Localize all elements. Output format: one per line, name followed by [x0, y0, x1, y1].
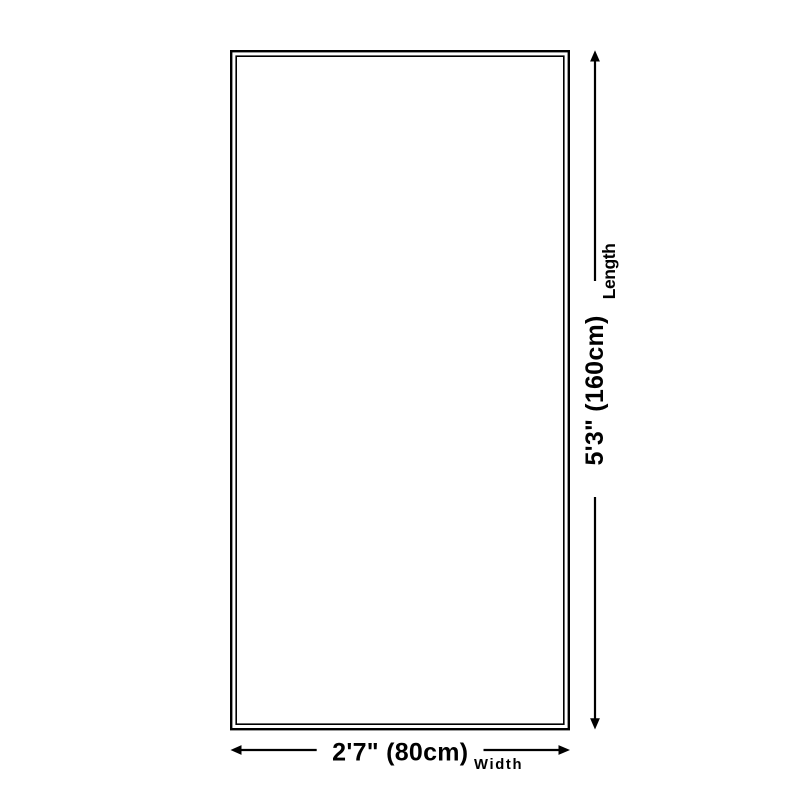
svg-text:Width: Width — [474, 757, 523, 773]
svg-text:5'3" (160cm): 5'3" (160cm) — [581, 315, 609, 465]
svg-text:Length: Length — [599, 244, 619, 300]
svg-text:2'7" (80cm): 2'7" (80cm) — [332, 739, 468, 767]
